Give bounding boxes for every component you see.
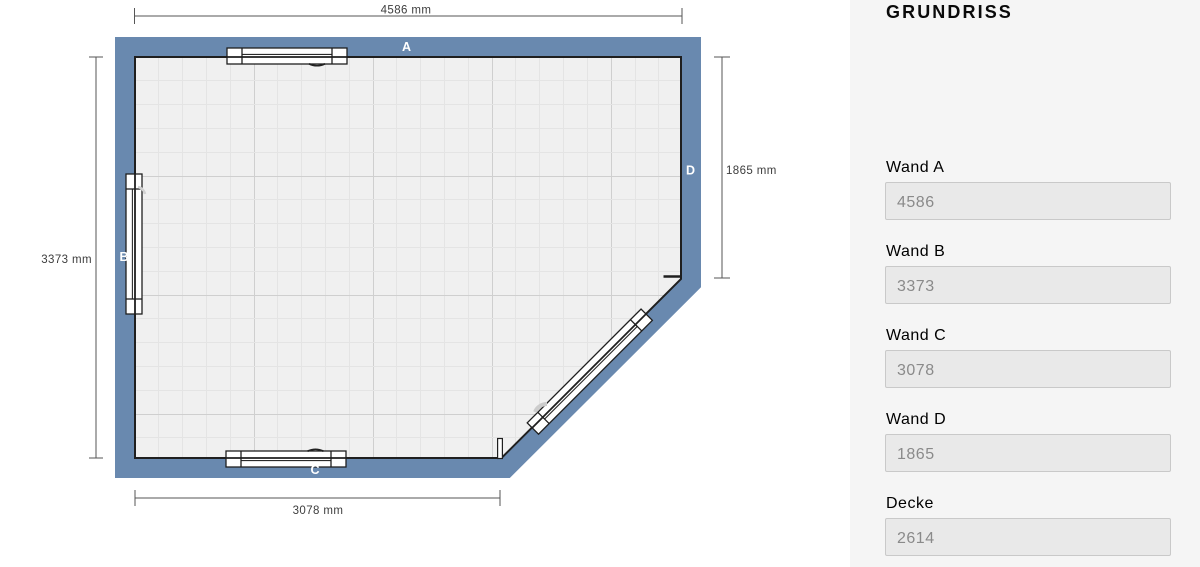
svg-text:C: C xyxy=(310,463,319,477)
svg-text:3078 mm: 3078 mm xyxy=(293,505,344,517)
svg-text:1865 mm: 1865 mm xyxy=(726,165,777,177)
svg-text:B: B xyxy=(119,250,128,264)
svg-text:D: D xyxy=(686,164,695,178)
svg-text:A: A xyxy=(402,40,411,54)
svg-text:3373 mm: 3373 mm xyxy=(41,254,92,266)
svg-text:4586 mm: 4586 mm xyxy=(381,5,432,17)
